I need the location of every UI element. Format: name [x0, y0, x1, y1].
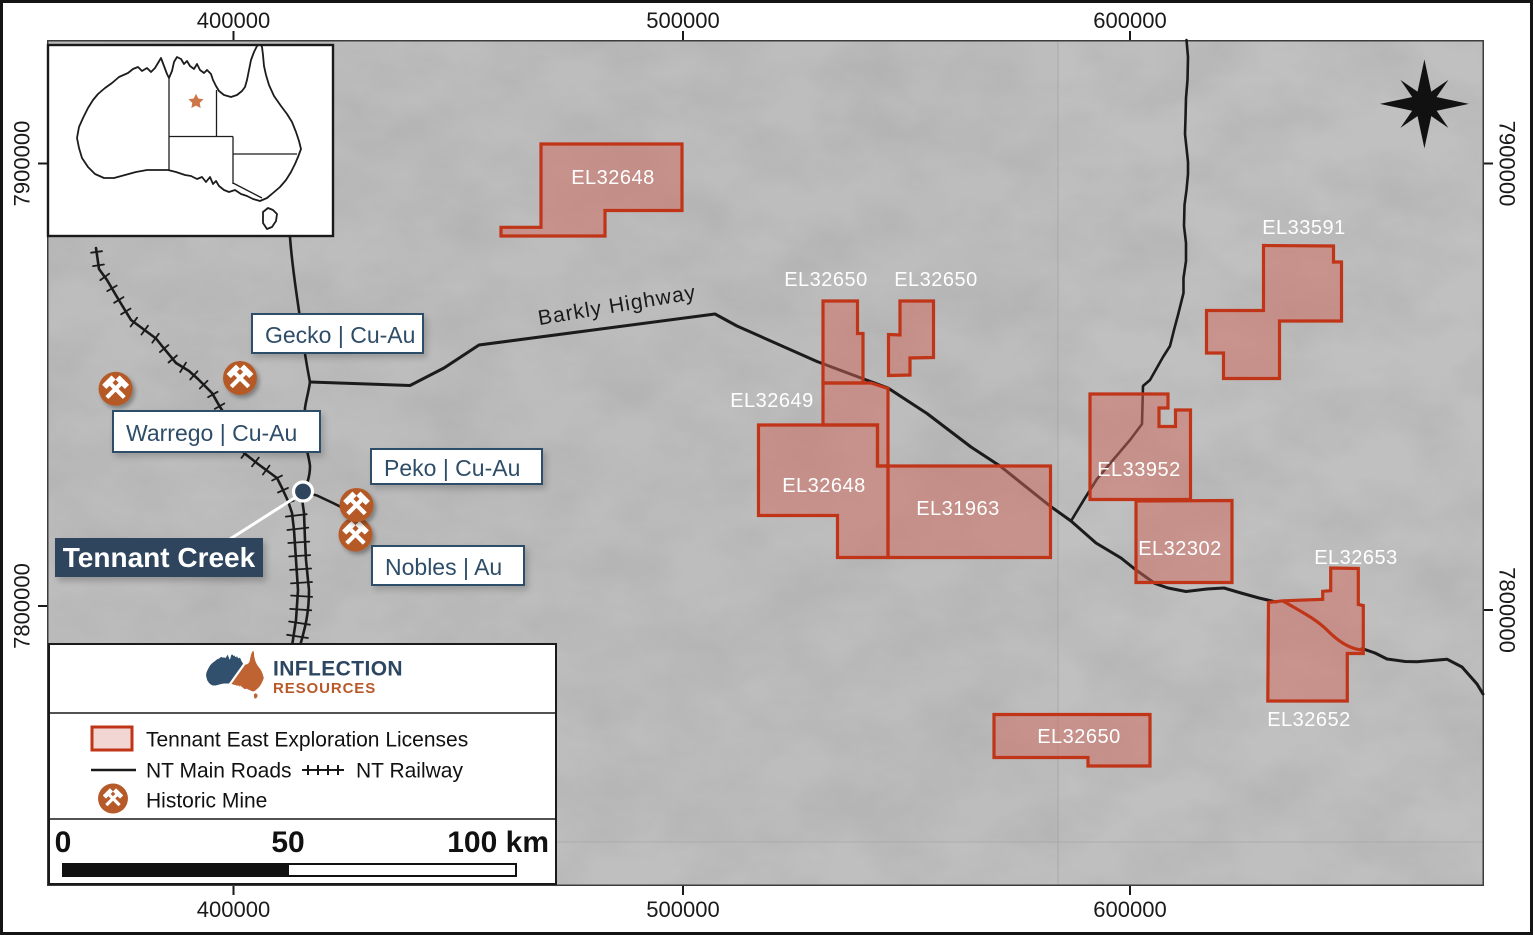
- svg-text:400000: 400000: [197, 897, 270, 922]
- svg-text:EL32653: EL32653: [1314, 547, 1398, 569]
- svg-text:600000: 600000: [1093, 897, 1166, 922]
- svg-text:500000: 500000: [646, 8, 719, 33]
- svg-text:NT Main Roads: NT Main Roads: [146, 760, 292, 783]
- svg-text:7800000: 7800000: [10, 563, 35, 649]
- svg-text:EL31963: EL31963: [916, 498, 1000, 520]
- svg-text:EL32302: EL32302: [1138, 538, 1222, 560]
- svg-text:EL32648: EL32648: [782, 475, 866, 497]
- svg-text:50: 50: [271, 826, 304, 859]
- svg-text:EL33591: EL33591: [1262, 217, 1346, 239]
- svg-text:INFLECTION: INFLECTION: [273, 658, 403, 681]
- svg-text:NT Railway: NT Railway: [356, 760, 463, 783]
- svg-text:EL33952: EL33952: [1097, 459, 1181, 481]
- svg-text:EL32650: EL32650: [894, 269, 978, 291]
- svg-text:7800000: 7800000: [1495, 567, 1520, 653]
- svg-text:Historic Mine: Historic Mine: [146, 790, 267, 813]
- svg-text:EL32648: EL32648: [571, 167, 655, 189]
- svg-text:400000: 400000: [197, 8, 270, 33]
- svg-text:EL32650: EL32650: [1037, 726, 1121, 748]
- svg-text:EL32649: EL32649: [730, 390, 814, 412]
- svg-text:EL32652: EL32652: [1267, 709, 1351, 731]
- svg-text:600000: 600000: [1093, 8, 1166, 33]
- svg-text:EL32650: EL32650: [784, 269, 868, 291]
- svg-text:100 km: 100 km: [447, 826, 549, 859]
- svg-text:Tennant East Exploration Licen: Tennant East Exploration Licenses: [146, 729, 468, 752]
- svg-text:500000: 500000: [646, 897, 719, 922]
- svg-text:0: 0: [55, 826, 72, 859]
- svg-text:7900000: 7900000: [1495, 121, 1520, 207]
- svg-text:RESOURCES: RESOURCES: [273, 680, 376, 697]
- svg-text:7900000: 7900000: [10, 121, 35, 207]
